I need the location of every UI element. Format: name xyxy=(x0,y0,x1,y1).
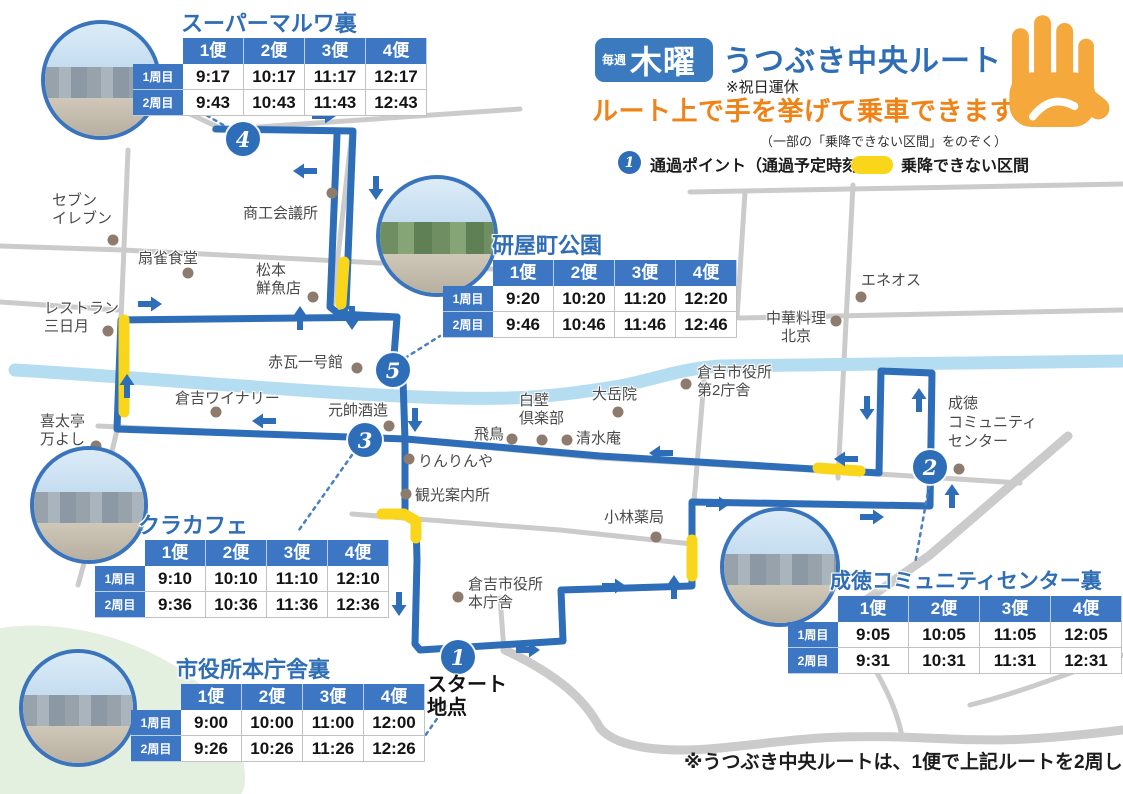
map-label-beijing-restaurant: 中華料理 北京 xyxy=(758,310,834,346)
timetable-time-cell: 12:10 xyxy=(328,566,389,592)
hail-banner: ルート上で手を挙げて乗車できます xyxy=(592,91,1016,128)
timetable-time-cell: 12:20 xyxy=(676,286,737,312)
timetable-header-row: 1便2便3便4便 xyxy=(788,596,1122,622)
stop-marker-3: 3 xyxy=(348,423,382,457)
timetable-time-cell: 11:31 xyxy=(980,648,1051,674)
map-label-kurayoshi-winery: 倉吉ワイナリー xyxy=(175,390,280,408)
weekday-badge: 毎週 木曜 xyxy=(595,38,713,82)
timetable-row: 2周目9:4610:4611:4612:46 xyxy=(443,312,737,338)
route-arrowhead xyxy=(392,605,407,616)
timetable-row-label: 1周目 xyxy=(133,64,183,90)
map-label-shimizuan: 清水庵 xyxy=(576,430,621,448)
map-label-gensui-shuzo: 元帥酒造 xyxy=(328,402,388,420)
timetable-time-cell: 10:46 xyxy=(554,312,615,338)
timetable-time-cell: 12:05 xyxy=(1051,622,1122,648)
route-map-page: 1 2 3 4 5 セブン イレブン 商工会議所 扇雀食堂 松本 鮮魚店 レスト… xyxy=(0,0,1123,794)
legend-pass-point-marker: 1 xyxy=(618,151,641,174)
timetable-row: 1周目9:2010:2011:2012:20 xyxy=(443,286,737,312)
timetable-time-cell: 11:17 xyxy=(305,64,366,90)
badge-day: 木曜 xyxy=(630,37,696,83)
route-arrowhead xyxy=(667,575,682,586)
map-label-senjaku-shokudo: 扇雀食堂 xyxy=(138,250,198,268)
timetable-row-label: 2周目 xyxy=(443,312,493,338)
timetable-seitoku-community: 成徳コミュニティセンター裏1便2便3便4便1周目9:0510:0511:0512… xyxy=(788,570,1122,674)
map-label-restaurant-mikazuki: レストラン 三日月 xyxy=(44,300,119,336)
timetable-column-header: 2便 xyxy=(244,38,305,64)
timetable-row-label: 1周目 xyxy=(95,566,145,592)
route-arrowhead xyxy=(345,319,360,330)
map-label-akagawara-ichigokan: 赤瓦一号館 xyxy=(268,354,343,372)
map-label-matsumoto-fish-shop: 松本 鮮魚店 xyxy=(256,262,301,298)
route-arrowhead xyxy=(293,164,304,179)
timetable-row-label: 2周目 xyxy=(131,736,181,762)
timetable-header-row: 1便2便3便4便 xyxy=(443,260,737,286)
timetable-header-row: 1便2便3便4便 xyxy=(131,684,425,710)
timetable-header-row: 1便2便3便4便 xyxy=(133,38,427,64)
timetable-time-cell: 12:46 xyxy=(676,312,737,338)
map-label-asuka: 飛鳥 xyxy=(474,426,504,444)
timetable-column-header: 4便 xyxy=(1051,596,1122,622)
legend-no-board-pill xyxy=(851,156,893,174)
timetable-time-cell: 10:00 xyxy=(242,710,303,736)
timetable-column-header: 3便 xyxy=(303,684,364,710)
timetable-time-cell: 11:43 xyxy=(305,90,366,116)
stop-marker-1: 1 xyxy=(441,640,475,674)
badge-frequency-text: 毎週 xyxy=(602,53,626,67)
hail-banner-note: （一部の「乗降できない区間」をのぞく） xyxy=(760,131,1007,150)
route-arrowhead xyxy=(945,484,960,495)
timetable-column-header: 1便 xyxy=(145,540,206,566)
timetable-time-cell: 9:00 xyxy=(181,710,242,736)
start-point-label: スタート 地点 xyxy=(427,674,507,720)
timetable-row-label: 2周目 xyxy=(95,592,145,618)
timetable-time-cell: 10:10 xyxy=(206,566,267,592)
route-arrowhead xyxy=(719,497,730,512)
timetable-column-header: 3便 xyxy=(305,38,366,64)
timetable-togiyamachi-park: 研屋町公園1便2便3便4便1周目9:2010:2011:2012:202周目9:… xyxy=(443,234,737,338)
timetable-time-cell: 9:26 xyxy=(181,736,242,762)
timetable-column-header: 2便 xyxy=(554,260,615,286)
timetable-corner xyxy=(95,540,145,566)
timetable-time-cell: 12:00 xyxy=(364,710,425,736)
timetable-time-cell: 10:05 xyxy=(909,622,980,648)
route-arrowhead xyxy=(293,306,308,317)
stop-marker-4: 4 xyxy=(226,122,260,156)
timetable-time-cell: 11:36 xyxy=(267,592,328,618)
timetable-time-cell: 12:26 xyxy=(364,736,425,762)
timetable-corner xyxy=(788,596,838,622)
timetable-time-cell: 10:36 xyxy=(206,592,267,618)
map-label-seven-eleven: セブン イレブン xyxy=(52,192,112,228)
timetable-time-cell: 10:43 xyxy=(244,90,305,116)
timetable-column-header: 4便 xyxy=(676,260,737,286)
route-arrowhead xyxy=(408,421,423,432)
route-arrowhead xyxy=(912,388,927,399)
timetable-column-header: 4便 xyxy=(366,38,427,64)
timetable-time-cell: 9:17 xyxy=(183,64,244,90)
timetable-time-cell: 11:00 xyxy=(303,710,364,736)
timetable-time-cell: 9:10 xyxy=(145,566,206,592)
timetable-time-cell: 9:46 xyxy=(493,312,554,338)
timetable-time-cell: 9:36 xyxy=(145,592,206,618)
timetable-title: 研屋町公園 xyxy=(492,234,737,258)
timetable-corner xyxy=(131,684,181,710)
timetable-time-cell: 10:31 xyxy=(909,648,980,674)
map-label-cityhall-main: 倉吉市役所 本庁舎 xyxy=(468,576,543,612)
timetable-row: 2周目9:2610:2611:2612:26 xyxy=(131,736,425,762)
timetable-column-header: 3便 xyxy=(980,596,1051,622)
stop-photo-cityhall xyxy=(19,649,137,767)
timetable-row: 1周目9:0010:0011:0012:00 xyxy=(131,710,425,736)
timetable-column-header: 1便 xyxy=(838,596,909,622)
timetable-time-cell: 11:20 xyxy=(615,286,676,312)
timetable-cityhall: 市役所本庁舎裏1便2便3便4便1周目9:0010:0011:0012:002周目… xyxy=(131,658,425,762)
badge-frequency: 毎週 xyxy=(602,54,626,67)
timetable-column-header: 3便 xyxy=(615,260,676,286)
timetable-time-cell: 11:26 xyxy=(303,736,364,762)
map-label-shirakabe-club: 白壁 倶楽部 xyxy=(519,392,564,428)
timetable-row: 2周目9:3610:3611:3612:36 xyxy=(95,592,389,618)
timetable-column-header: 3便 xyxy=(267,540,328,566)
timetable-title: 市役所本庁舎裏 xyxy=(176,658,425,682)
page-title: うつぶき中央ルート xyxy=(723,36,1002,80)
map-label-kitaitei-manyoshi: 喜太亭 万よし xyxy=(40,413,85,449)
timetable-row: 2周目9:3110:3111:3112:31 xyxy=(788,648,1122,674)
timetable-row: 1周目9:1010:1011:1012:10 xyxy=(95,566,389,592)
map-label-rinrinya: りんりんや xyxy=(418,453,493,471)
timetable-time-cell: 9:31 xyxy=(838,648,909,674)
map-label-daigakuin: 大岳院 xyxy=(592,386,637,404)
route-arrowhead xyxy=(860,409,875,420)
timetable-super-maruwa: スーパーマルワ裏1便2便3便4便1周目9:1710:1711:1712:172周… xyxy=(133,12,427,116)
timetable-column-header: 4便 xyxy=(364,684,425,710)
timetable-row: 2周目9:4310:4311:4312:43 xyxy=(133,90,427,116)
footer-note: ※うつぶき中央ルートは、1便で上記ルートを2周します xyxy=(684,747,1123,774)
legend-pass-point-label: 通過ポイント（通過予定時刻） xyxy=(650,152,874,176)
timetable-title: 成徳コミュニティセンター裏 xyxy=(830,570,1122,594)
timetable-row: 1周目9:0510:0511:0512:05 xyxy=(788,622,1122,648)
photo-ground xyxy=(23,726,133,763)
timetable-row: 1周目9:1710:1711:1712:17 xyxy=(133,64,427,90)
timetable-column-header: 2便 xyxy=(909,596,980,622)
timetable-time-cell: 12:36 xyxy=(328,592,389,618)
stop-marker-5: 5 xyxy=(376,353,410,387)
timetable-column-header: 2便 xyxy=(206,540,267,566)
timetable-row-label: 2周目 xyxy=(133,90,183,116)
route-arrowhead xyxy=(252,414,263,429)
legend-no-board-label: 乗降できない区間 xyxy=(901,152,1029,176)
timetable-title: スーパーマルワ裏 xyxy=(181,12,427,36)
timetable-column-header: 1便 xyxy=(183,38,244,64)
map-label-cityhall-2nd: 倉吉市役所 第2庁舎 xyxy=(697,364,772,400)
timetable-time-cell: 12:31 xyxy=(1051,648,1122,674)
timetable-row-label: 1周目 xyxy=(443,286,493,312)
timetable-time-cell: 11:10 xyxy=(267,566,328,592)
timetable-column-header: 1便 xyxy=(493,260,554,286)
timetable-corner xyxy=(133,38,183,64)
timetable-time-cell: 9:43 xyxy=(183,90,244,116)
timetable-row-label: 1周目 xyxy=(788,622,838,648)
route-arrowhead xyxy=(151,297,162,312)
timetable-row-label: 2周目 xyxy=(788,648,838,674)
raised-hand-icon xyxy=(985,10,1117,140)
timetable-header-row: 1便2便3便4便 xyxy=(95,540,389,566)
timetable-column-header: 2便 xyxy=(242,684,303,710)
timetable-time-cell: 12:17 xyxy=(366,64,427,90)
timetable-time-cell: 10:17 xyxy=(244,64,305,90)
map-label-kobayashi-pharmacy: 小林薬局 xyxy=(604,509,664,527)
timetable-time-cell: 10:20 xyxy=(554,286,615,312)
stop-marker-2: 2 xyxy=(913,450,947,484)
map-label-tourist-info: 観光案内所 xyxy=(415,487,490,505)
timetable-column-header: 4便 xyxy=(328,540,389,566)
timetable-title: クラカフェ xyxy=(138,514,389,538)
timetable-time-cell: 10:26 xyxy=(242,736,303,762)
timetable-kura-cafe: クラカフェ1便2便3便4便1周目9:1010:1011:1012:102周目9:… xyxy=(95,514,389,618)
photo-buildings xyxy=(23,695,133,728)
timetable-column-header: 1便 xyxy=(181,684,242,710)
timetable-time-cell: 9:05 xyxy=(838,622,909,648)
timetable-time-cell: 11:46 xyxy=(615,312,676,338)
timetable-time-cell: 12:43 xyxy=(366,90,427,116)
map-label-seitoku-community-center: 成徳 コミュニティ センター xyxy=(948,394,1037,451)
timetable-time-cell: 9:20 xyxy=(493,286,554,312)
timetable-time-cell: 11:05 xyxy=(980,622,1051,648)
route-arrowhead xyxy=(873,510,884,525)
timetable-corner xyxy=(443,260,493,286)
map-label-eneos: エネオス xyxy=(861,272,921,290)
timetable-row-label: 1周目 xyxy=(131,710,181,736)
map-label-chamber-of-commerce: 商工会議所 xyxy=(243,205,318,223)
